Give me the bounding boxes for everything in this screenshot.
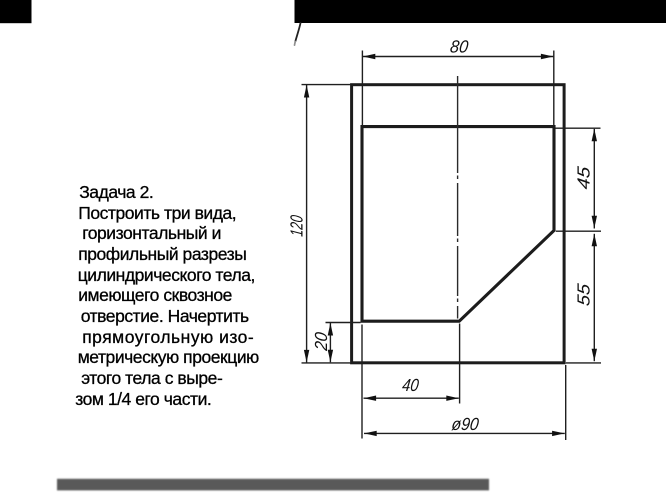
svg-text:120: 120 xyxy=(286,214,306,238)
svg-text:80: 80 xyxy=(449,37,470,57)
svg-text:ø90: ø90 xyxy=(451,414,481,434)
svg-text:45: 45 xyxy=(574,165,594,190)
svg-text:40: 40 xyxy=(401,375,420,395)
svg-text:20: 20 xyxy=(311,331,331,353)
svg-text:55: 55 xyxy=(574,282,594,307)
